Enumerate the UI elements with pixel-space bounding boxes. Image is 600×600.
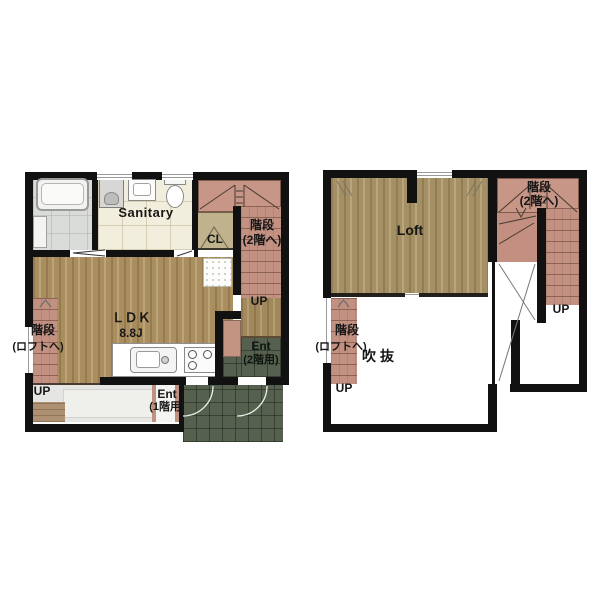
- window: [417, 170, 452, 178]
- kitchen-faucet: [161, 356, 169, 364]
- label-stairs-2f-2: (2階へ): [510, 195, 568, 209]
- stairs-winder: [497, 213, 537, 262]
- stove-burner-2: [203, 350, 212, 359]
- step-edge: [241, 336, 281, 338]
- label-stairs-2f-1: 階段: [515, 181, 563, 195]
- wall: [511, 320, 520, 392]
- wall: [510, 384, 587, 392]
- entrance-porch: [183, 385, 283, 442]
- label-sanitary: Sanitary: [106, 206, 186, 221]
- label-loft: Loft: [385, 222, 435, 238]
- label-ent2f-2: (2階用): [234, 354, 288, 367]
- label-stairs-loft-1: 階段: [20, 324, 66, 338]
- label-cl: CL: [202, 233, 228, 247]
- wall: [192, 172, 198, 257]
- label-stairs-2f-1: 階段: [238, 219, 286, 233]
- wall: [92, 172, 98, 257]
- label-ent1f-1: Ent: [142, 388, 192, 402]
- wall: [492, 262, 495, 384]
- label-up-right: UP: [548, 303, 574, 317]
- floorplan-canvas: Sanitary CL 階段 (2階へ) UP ＬＤＫ 8.8J 階段 (ロフト…: [0, 0, 600, 600]
- wall: [323, 424, 497, 432]
- wall: [488, 178, 497, 262]
- door-opening: [174, 250, 194, 257]
- wall: [215, 311, 223, 385]
- stove-burner-3: [188, 361, 197, 370]
- label-up-left: UP: [331, 382, 357, 396]
- label-ent2f-1: Ent: [238, 340, 284, 354]
- label-stairs-loft-1: 階段: [324, 324, 370, 338]
- kitchen-sink-basin: [136, 351, 160, 368]
- label-ldk-size: 8.8J: [100, 327, 162, 341]
- label-stairs-loft-2: (ロフトへ): [0, 341, 76, 354]
- washing-machine-drum: [104, 192, 119, 205]
- wall: [25, 250, 198, 257]
- wall: [579, 170, 587, 392]
- label-stairs-2f-2: (2階へ): [232, 234, 292, 248]
- refrigerator: [203, 258, 232, 287]
- label-ldk: ＬＤＫ: [100, 311, 162, 326]
- door-opening-ent1f: [186, 377, 208, 385]
- wall: [25, 424, 183, 432]
- bathtub-inner: [41, 183, 84, 205]
- vanity-sink-bowl: [133, 183, 151, 196]
- bath-counter: [33, 216, 47, 248]
- wall-stub: [407, 170, 417, 203]
- door-opening: [70, 250, 106, 257]
- label-ent1f-2: (1階用): [138, 401, 196, 414]
- door-opening-ent2f: [238, 377, 266, 385]
- wall: [323, 170, 587, 178]
- wood-deck: [33, 402, 65, 422]
- window: [162, 172, 193, 180]
- label-void: 吹抜: [355, 348, 405, 364]
- stairs-2f-run: [546, 208, 579, 305]
- window: [97, 172, 132, 180]
- label-up-stairs2f: UP: [246, 295, 272, 309]
- wall: [537, 208, 546, 323]
- stove-burner-1: [188, 350, 197, 359]
- label-up-loft: UP: [29, 385, 55, 399]
- loft-edge-opening: [405, 293, 419, 297]
